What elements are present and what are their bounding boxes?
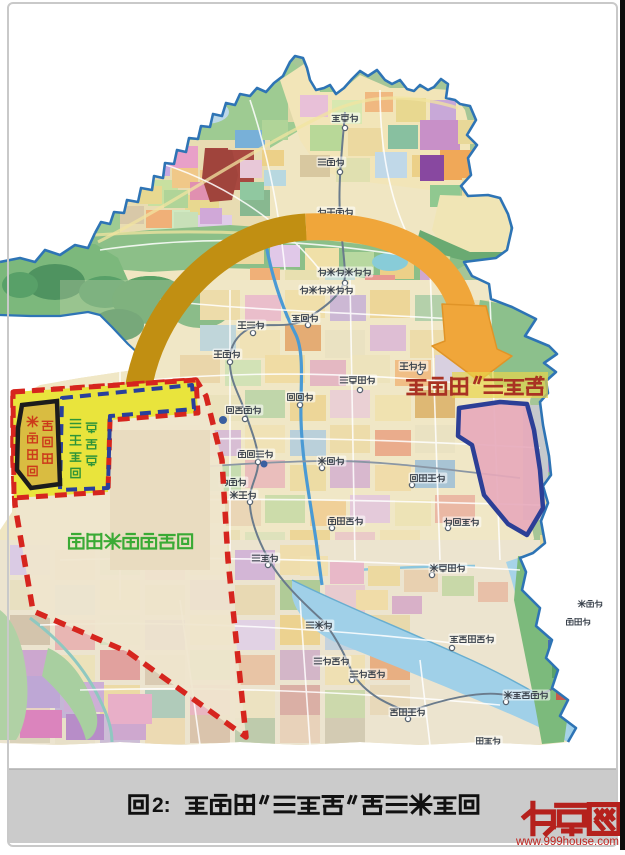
svg-text:www.999house.com: www.999house.com — [515, 836, 619, 848]
svg-text:2:: 2: — [152, 794, 171, 817]
